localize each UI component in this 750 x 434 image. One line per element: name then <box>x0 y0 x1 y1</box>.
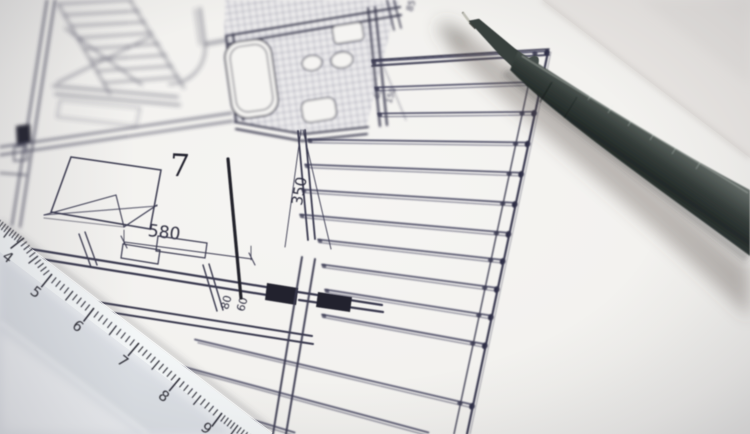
photo-canvas: 85 40 150 7 580 <box>0 0 750 434</box>
left-shade-overlay <box>0 0 750 434</box>
blueprint-photo: 85 40 150 7 580 <box>0 0 750 434</box>
